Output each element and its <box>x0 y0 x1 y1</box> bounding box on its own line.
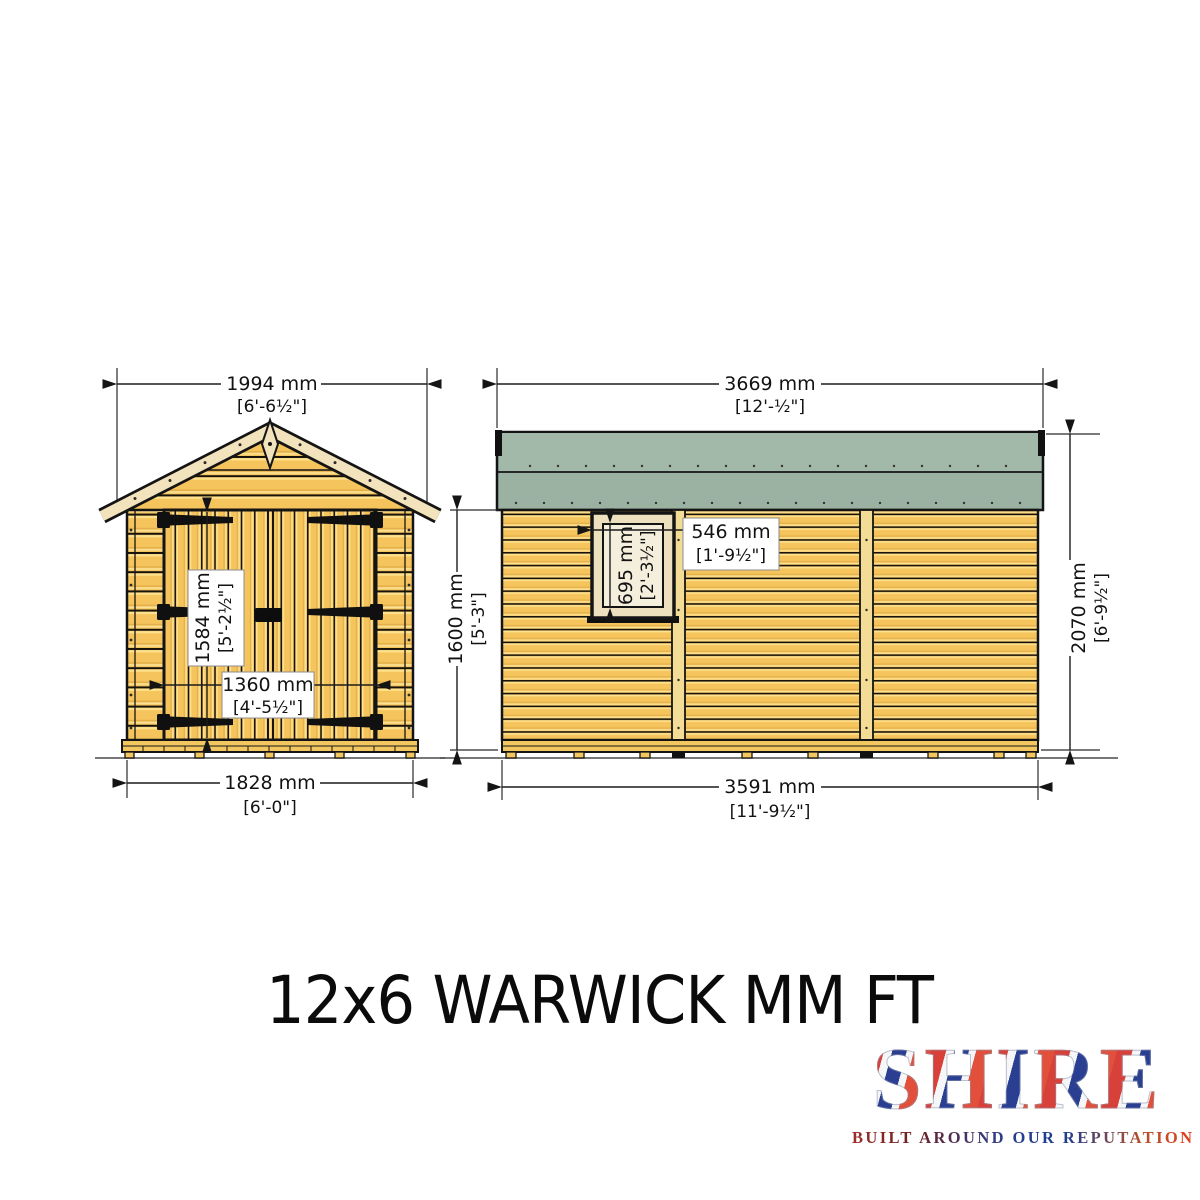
wall-batten-2 <box>860 510 873 740</box>
svg-text:1600 mm: 1600 mm <box>445 573 467 664</box>
drawing-title-text: 12x6 WARWICK MM FT <box>266 962 933 1039</box>
dim-side-length-top: 3669 mm [12'-½"] <box>497 368 1043 428</box>
svg-text:[6'-6½"]: [6'-6½"] <box>237 397 307 417</box>
svg-text:3669 mm: 3669 mm <box>724 373 815 395</box>
svg-text:1994 mm: 1994 mm <box>226 373 317 395</box>
dim-side-eaves-height: 1600 mm [5'-3"] <box>445 510 498 750</box>
svg-text:[2'-3½"]: [2'-3½"] <box>638 530 658 600</box>
svg-text:[1'-9½"]: [1'-9½"] <box>696 546 766 566</box>
dim-side-ridge-height: 2070 mm [6'-9½"] <box>1041 434 1112 750</box>
shire-logo-tagline: BUILT AROUND OUR REPUTATION <box>852 1128 1194 1148</box>
side-base <box>502 740 1038 758</box>
svg-text:3591 mm: 3591 mm <box>724 776 815 798</box>
svg-text:695 mm: 695 mm <box>615 526 637 605</box>
svg-text:[6'-9½"]: [6'-9½"] <box>1092 573 1112 643</box>
front-elevation-drawing: 1994 mm [6'-6½"] <box>95 360 445 835</box>
svg-text:546 mm: 546 mm <box>691 521 770 543</box>
shed-technical-drawing: 1994 mm [6'-6½"] <box>0 0 1200 1200</box>
dim-side-window-height: 695 mm [2'-3½"] <box>610 523 658 608</box>
svg-text:[11'-9½"]: [11'-9½"] <box>730 802 811 822</box>
shire-logo: SHIRE BUILT AROUND OUR REPUTATION <box>852 1034 1182 1148</box>
side-roof <box>495 430 1045 510</box>
drawing-title: 12x6 WARWICK MM FT <box>0 962 1200 1039</box>
front-base <box>122 740 418 758</box>
dim-side-length-base: 3591 mm [11'-9½"] <box>502 760 1038 822</box>
svg-text:[5'-3"]: [5'-3"] <box>469 592 489 646</box>
svg-text:1360 mm: 1360 mm <box>222 674 313 696</box>
shire-logo-wordmark: SHIRE <box>873 1034 1162 1126</box>
svg-text:[4'-5½"]: [4'-5½"] <box>233 698 303 718</box>
dim-front-width-base: 1828 mm [6'-0"] <box>127 760 413 818</box>
svg-text:[12'-½"]: [12'-½"] <box>735 397 805 417</box>
svg-text:[5'-2½"]: [5'-2½"] <box>216 583 236 653</box>
side-elevation-drawing: 3669 mm [12'-½"] <box>440 360 1120 835</box>
door-lock <box>255 608 282 622</box>
svg-text:2070 mm: 2070 mm <box>1068 562 1090 653</box>
svg-text:[6'-0"]: [6'-0"] <box>243 798 297 818</box>
svg-text:1828 mm: 1828 mm <box>224 772 315 794</box>
svg-text:1584 mm: 1584 mm <box>192 572 214 663</box>
